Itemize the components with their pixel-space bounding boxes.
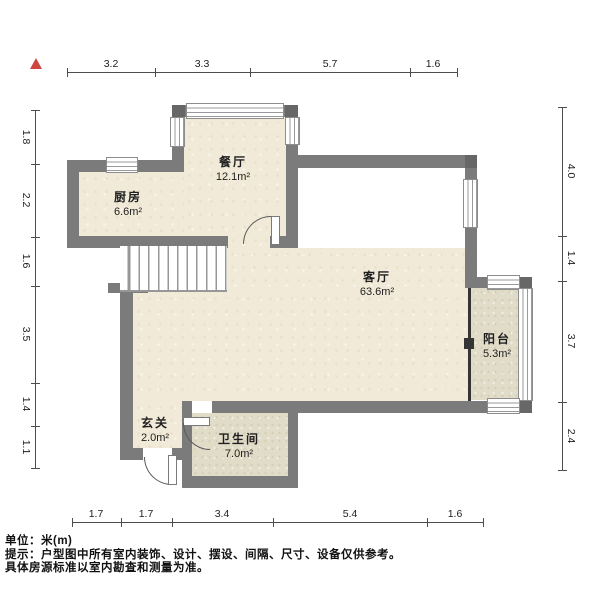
dim-tick (410, 68, 411, 77)
room-label-balcony: 阳台5.3m² (483, 330, 511, 360)
dim-tick (427, 518, 428, 527)
dim-label: 3.5 (20, 327, 32, 342)
wall (212, 401, 532, 413)
dim-tick (558, 281, 567, 282)
room-label-dining: 餐厅12.1m² (216, 153, 250, 183)
dim-tick (558, 236, 567, 237)
dim-label: 2.4 (565, 429, 577, 444)
dim-label: 1.4 (565, 251, 577, 266)
wall (120, 283, 133, 460)
dim-tick (558, 107, 567, 108)
window-living-right (463, 179, 478, 228)
dim-tick (155, 68, 156, 77)
wall (182, 476, 298, 488)
window-dining-bay-top (186, 103, 284, 119)
room-name: 餐厅 (216, 153, 250, 170)
window-kitchen (106, 157, 138, 173)
room-name: 客厅 (360, 268, 394, 285)
dim-tick (31, 426, 40, 427)
dim-tick (31, 237, 40, 238)
footer-note-2: 具体房源标准以室内勘查和测量为准。 (5, 559, 209, 575)
dim-label: 2.2 (20, 193, 32, 208)
wall (288, 401, 298, 488)
dim-tick (67, 68, 68, 77)
door-leaf-dining (271, 216, 280, 245)
wall-post (520, 400, 532, 413)
dim-label: 1.7 (89, 508, 104, 520)
room-area: 63.6m² (360, 286, 394, 298)
room-name: 阳台 (483, 330, 511, 347)
dim-label: 1.1 (20, 440, 32, 455)
window-dining-bay-right (285, 117, 300, 145)
wall (67, 160, 79, 248)
room-name: 玄关 (141, 414, 169, 431)
window-dining-bay-left (170, 117, 185, 147)
room-area: 6.6m² (114, 206, 142, 218)
dim-label: 3.7 (565, 334, 577, 349)
room-label-bathroom: 卫生间7.0m² (218, 430, 260, 460)
door-leaf-entrance (168, 455, 177, 485)
dim-label: 1.6 (448, 508, 463, 520)
dim-label: 5.7 (323, 58, 338, 70)
dim-line-top (67, 72, 457, 73)
floor-living (133, 292, 468, 401)
dim-tick (72, 518, 73, 527)
wall (120, 448, 143, 460)
window-balcony-right (518, 288, 533, 401)
dim-tick (273, 518, 274, 527)
dim-label: 5.4 (343, 508, 358, 520)
dim-label: 4.0 (565, 164, 577, 179)
room-name: 卫生间 (218, 430, 260, 447)
dim-line-right (562, 107, 563, 470)
room-name: 厨房 (114, 188, 142, 205)
window-balcony-bottom (487, 398, 520, 414)
dim-tick (31, 468, 40, 469)
window-balcony-top (487, 275, 520, 290)
room-area: 5.3m² (483, 348, 511, 360)
dim-label: 3.3 (195, 58, 210, 70)
dim-label: 1.6 (426, 58, 441, 70)
dim-label: 1.6 (20, 254, 32, 269)
dim-tick (121, 518, 122, 527)
dim-tick (31, 164, 40, 165)
room-area: 2.0m² (141, 432, 169, 444)
dim-tick (31, 286, 40, 287)
floor-hall-upper (227, 248, 468, 292)
dim-tick (483, 518, 484, 527)
dim-label: 1.7 (139, 508, 154, 520)
room-area: 12.1m² (216, 171, 250, 183)
dim-tick (172, 518, 173, 527)
dim-tick (31, 110, 40, 111)
dim-label: 1.8 (20, 130, 32, 145)
dim-label: 3.4 (215, 508, 230, 520)
dim-tick (31, 383, 40, 384)
floor-plan-canvas: 餐厅12.1m²厨房6.6m²客厅63.6m²阳台5.3m²玄关2.0m²卫生间… (0, 0, 600, 592)
dim-label: 3.2 (104, 58, 119, 70)
dim-tick (558, 470, 567, 471)
wall (286, 155, 477, 168)
dim-tick (558, 402, 567, 403)
room-label-foyer: 玄关2.0m² (141, 414, 169, 444)
wall (182, 401, 192, 488)
wall-post (465, 155, 477, 168)
dim-line-bottom (72, 522, 483, 523)
room-area: 7.0m² (218, 448, 260, 460)
room-label-kitchen: 厨房6.6m² (114, 188, 142, 218)
dim-tick (250, 68, 251, 77)
staircase (120, 246, 227, 292)
balcony-door-handle (464, 338, 474, 349)
room-label-living: 客厅63.6m² (360, 268, 394, 298)
dim-tick (457, 68, 458, 77)
dim-label: 1.4 (20, 397, 32, 412)
north-arrow-icon (30, 58, 42, 69)
